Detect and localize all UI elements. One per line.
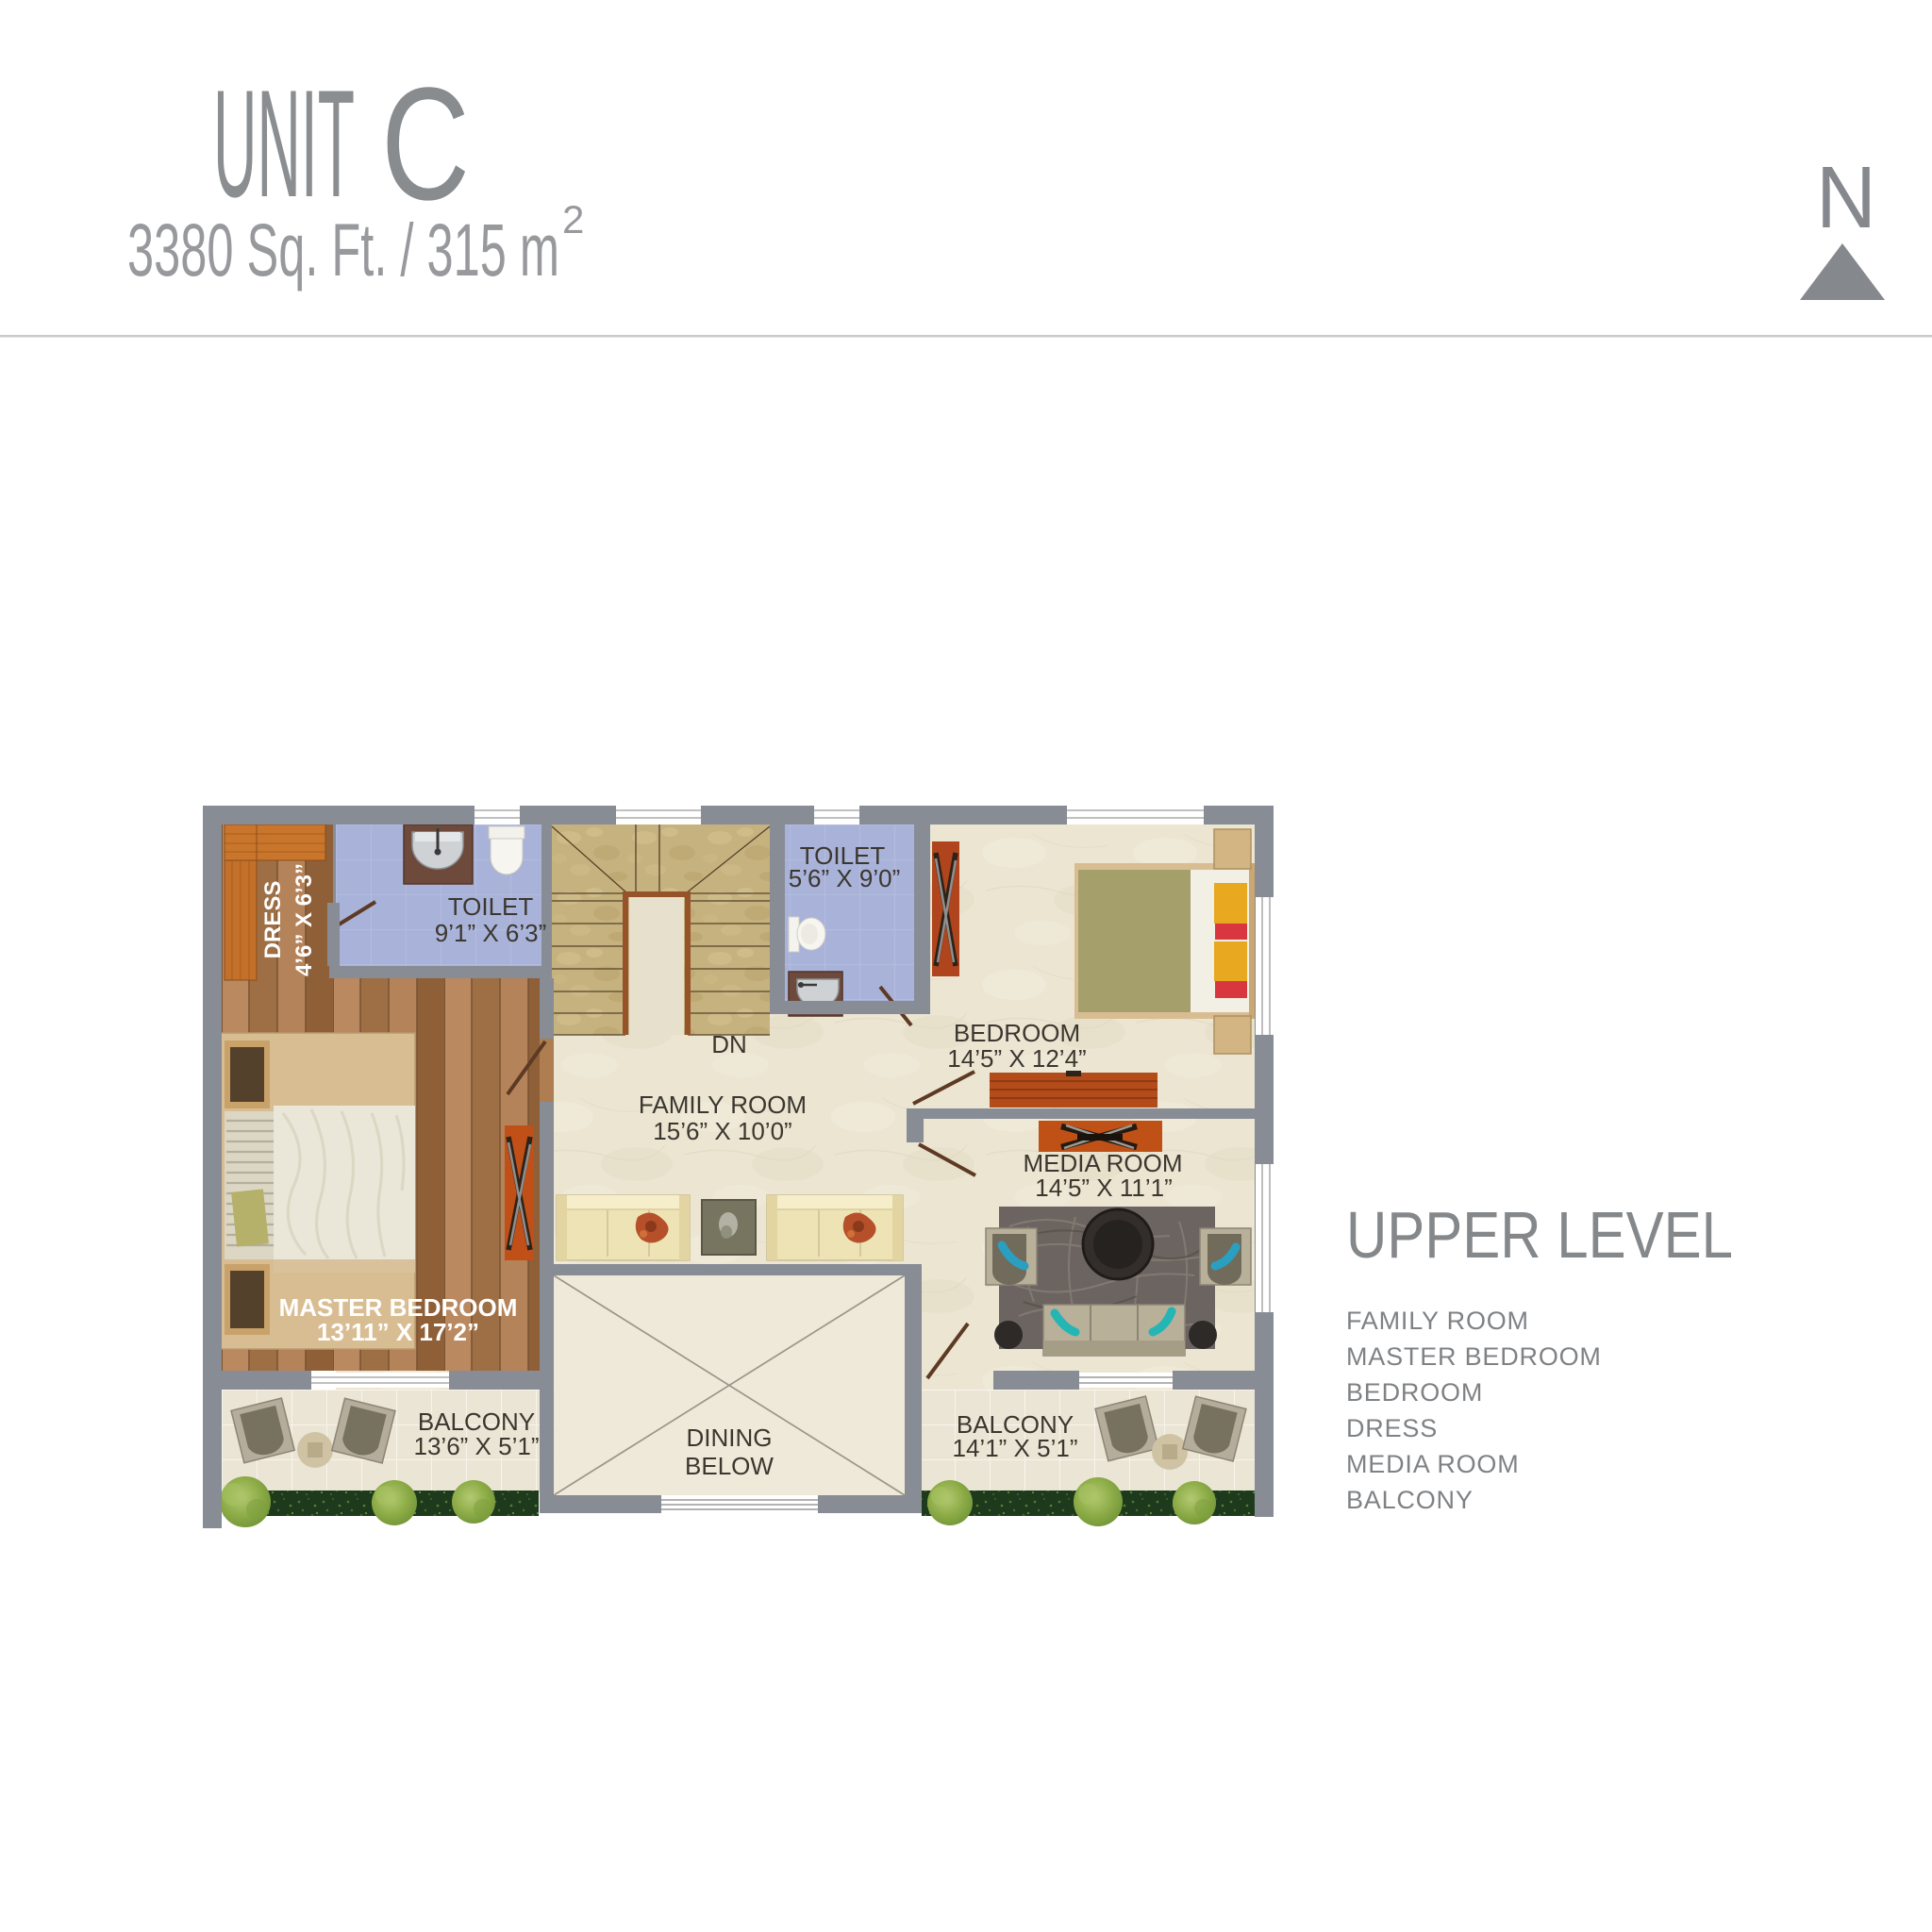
svg-text:N: N bbox=[1816, 148, 1876, 246]
svg-text:DRESS: DRESS bbox=[260, 881, 286, 959]
svg-text:13’11” X 17’2”: 13’11” X 17’2” bbox=[317, 1318, 479, 1346]
svg-text:BEDROOM: BEDROOM bbox=[1346, 1378, 1483, 1407]
svg-text:BELOW: BELOW bbox=[685, 1452, 774, 1480]
svg-text:MASTER BEDROOM: MASTER BEDROOM bbox=[1346, 1342, 1602, 1371]
svg-text:UPPER LEVEL: UPPER LEVEL bbox=[1346, 1198, 1733, 1272]
svg-text:13’6” X 5’1”: 13’6” X 5’1” bbox=[414, 1432, 540, 1460]
svg-text:BEDROOM: BEDROOM bbox=[954, 1019, 1080, 1047]
svg-text:MEDIA ROOM: MEDIA ROOM bbox=[1346, 1450, 1520, 1478]
svg-text:BALCONY: BALCONY bbox=[1346, 1486, 1474, 1514]
svg-text:3380 Sq. Ft. / 315 m: 3380 Sq. Ft. / 315 m bbox=[127, 208, 559, 291]
svg-text:TOILET: TOILET bbox=[448, 892, 534, 921]
svg-text:DN: DN bbox=[711, 1030, 747, 1058]
svg-text:FAMILY ROOM: FAMILY ROOM bbox=[1346, 1307, 1529, 1335]
svg-text:2: 2 bbox=[562, 197, 584, 241]
svg-text:4’6” X 6’3”: 4’6” X 6’3” bbox=[291, 863, 317, 976]
svg-text:14’5” X 11’1”: 14’5” X 11’1” bbox=[1035, 1174, 1173, 1202]
svg-text:UNIT: UNIT bbox=[213, 58, 355, 229]
svg-text:5’6” X 9’0”: 5’6” X 9’0” bbox=[789, 864, 901, 892]
svg-text:14’5” X 12’4”: 14’5” X 12’4” bbox=[947, 1044, 1086, 1073]
svg-text:15’6” X 10’0”: 15’6” X 10’0” bbox=[653, 1117, 791, 1145]
svg-text:14’1” X 5’1”: 14’1” X 5’1” bbox=[953, 1434, 1078, 1462]
svg-text:FAMILY ROOM: FAMILY ROOM bbox=[639, 1091, 807, 1119]
svg-text:DINING: DINING bbox=[687, 1424, 773, 1452]
svg-text:9’1” X 6’3”: 9’1” X 6’3” bbox=[435, 919, 547, 947]
svg-text:DRESS: DRESS bbox=[1346, 1414, 1438, 1442]
